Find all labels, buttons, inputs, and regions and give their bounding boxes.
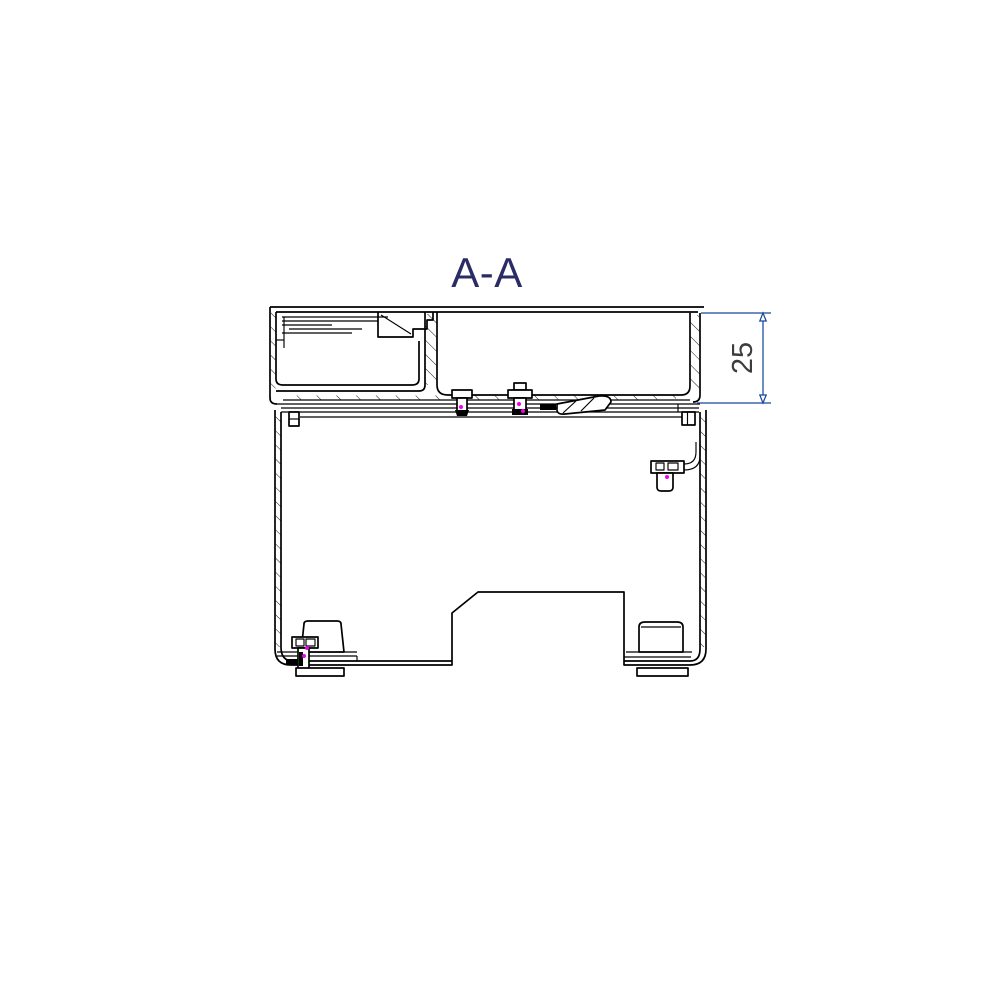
left-foot-base-plate [296, 668, 344, 676]
dimension-value-group: 25 [727, 342, 759, 374]
ref-point-1 [459, 405, 463, 409]
clip1-head [452, 390, 472, 398]
left-foot-clip-notch-1 [296, 639, 304, 646]
left-foot-dark-segment [286, 659, 298, 665]
hatch-base-right-wall [701, 414, 706, 647]
base-profile [275, 410, 706, 676]
right-clip-notch-2 [668, 463, 678, 470]
base-topleft-tab [289, 412, 299, 426]
cover-profile [270, 307, 704, 417]
section-view-drawing: A-A [0, 0, 1000, 1000]
ref-point-5 [305, 646, 309, 650]
clip1-stem [457, 398, 467, 411]
right-foot-base-plate [637, 668, 688, 676]
hanging-tab-outline [682, 412, 695, 425]
cover-channel-lines [277, 400, 700, 417]
ref-point-2 [517, 402, 521, 406]
section-hatching [271, 309, 706, 647]
base-right-clip [651, 442, 700, 491]
snap-clip-2 [508, 383, 532, 410]
left-foot-clip-notch-2 [306, 639, 315, 646]
right-clip-arm-inner [684, 444, 700, 470]
ref-point-4 [665, 475, 669, 479]
dimension-value: 25 [727, 342, 759, 374]
section-title: A-A [451, 249, 523, 296]
hatch-base-left-wall [276, 414, 281, 647]
contact-blade-detail [276, 317, 388, 348]
channel-hanging-tab [682, 412, 695, 425]
reference-points [302, 402, 669, 658]
clip2-cap [514, 383, 526, 390]
clip2-head [508, 390, 532, 398]
insert-block-diagonal [381, 315, 411, 334]
ref-point-6 [302, 654, 306, 658]
hatch-channel-strip [292, 396, 676, 401]
dimension-arrow-top [760, 313, 766, 321]
ref-point-3 [521, 409, 525, 413]
clip2-base-wedge [512, 409, 528, 415]
dimension-annotation: 25 [697, 313, 771, 403]
base-left-foot [292, 621, 344, 676]
profile-geometry [270, 307, 706, 676]
latch-dark-segment [540, 404, 556, 410]
base-right-foot [637, 622, 688, 676]
dimension-arrow-bottom [760, 395, 766, 403]
base-bottom-rails [277, 652, 692, 661]
clip1-base-wedge [455, 410, 469, 416]
cover-left-wall-inner-floor [276, 312, 419, 385]
section-title-label: A-A [451, 249, 523, 296]
cover-partition-right-floor-right-wall [437, 312, 690, 395]
cover-floor-outer-partition-left [276, 312, 425, 391]
right-clip-body [657, 473, 673, 491]
right-clip-notch-1 [656, 463, 664, 470]
left-foot-pin-core [299, 652, 303, 666]
hatch-cover-right-wall [691, 315, 700, 393]
right-clip-arm-outer [684, 442, 696, 464]
hatch-cover-left-wall [271, 309, 276, 398]
